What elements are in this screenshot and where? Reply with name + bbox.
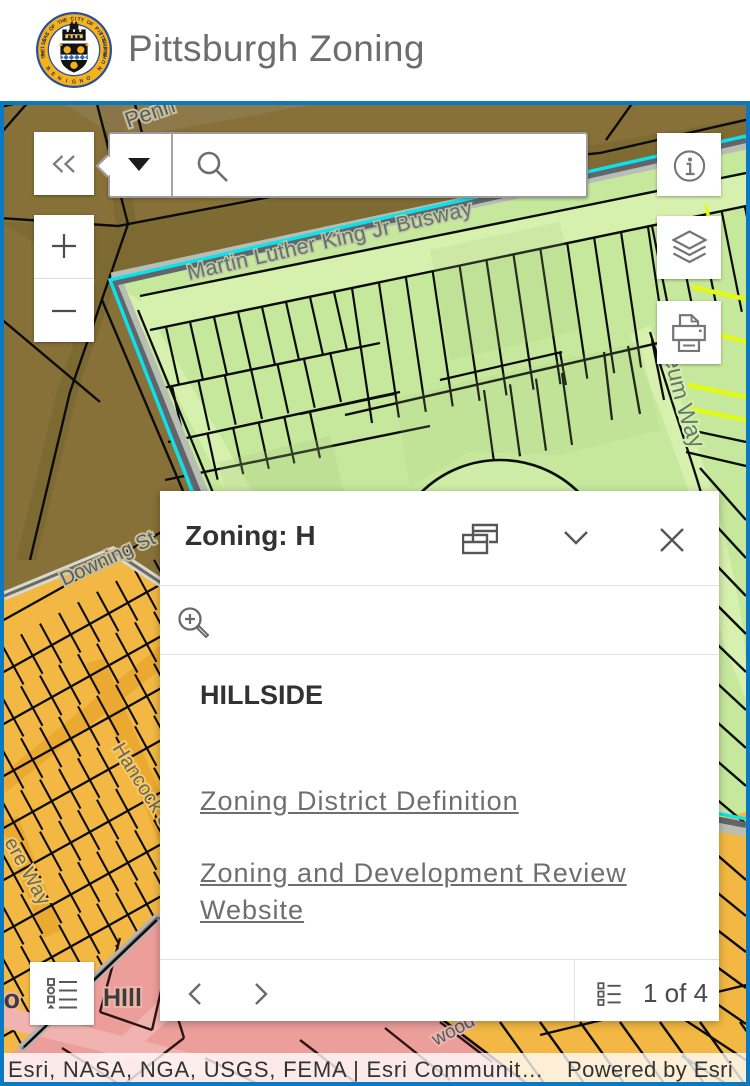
svg-text:’o: ’o (4, 984, 20, 1014)
svg-text:G: G (72, 79, 76, 85)
svg-text:M: M (103, 52, 110, 57)
svg-text:HIll: HIll (103, 984, 142, 1012)
